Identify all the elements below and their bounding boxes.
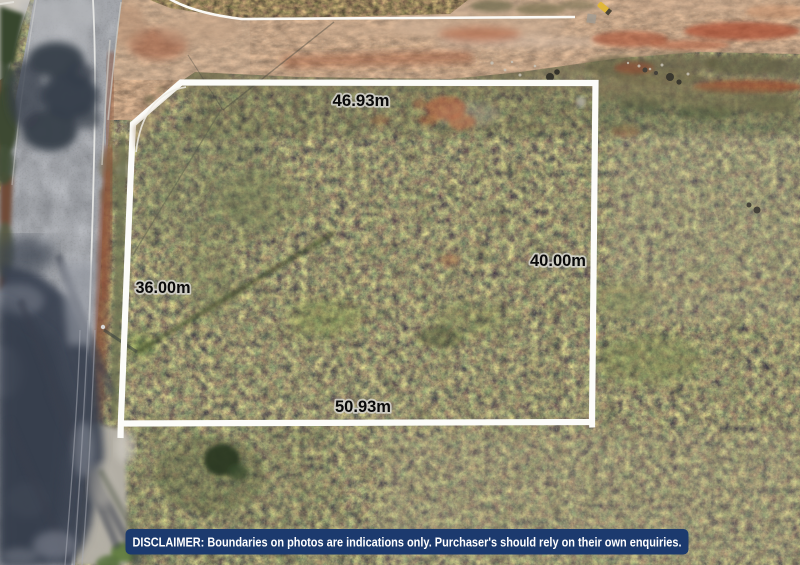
svg-text:50.93m: 50.93m [335, 397, 391, 416]
svg-text:DISCLAIMER: Boundaries on phot: DISCLAIMER: Boundaries on photos are ind… [133, 535, 682, 550]
svg-text:36.00m: 36.00m [136, 278, 191, 297]
svg-text:40.00m: 40.00m [530, 251, 586, 270]
svg-text:46.93m: 46.93m [333, 91, 390, 110]
